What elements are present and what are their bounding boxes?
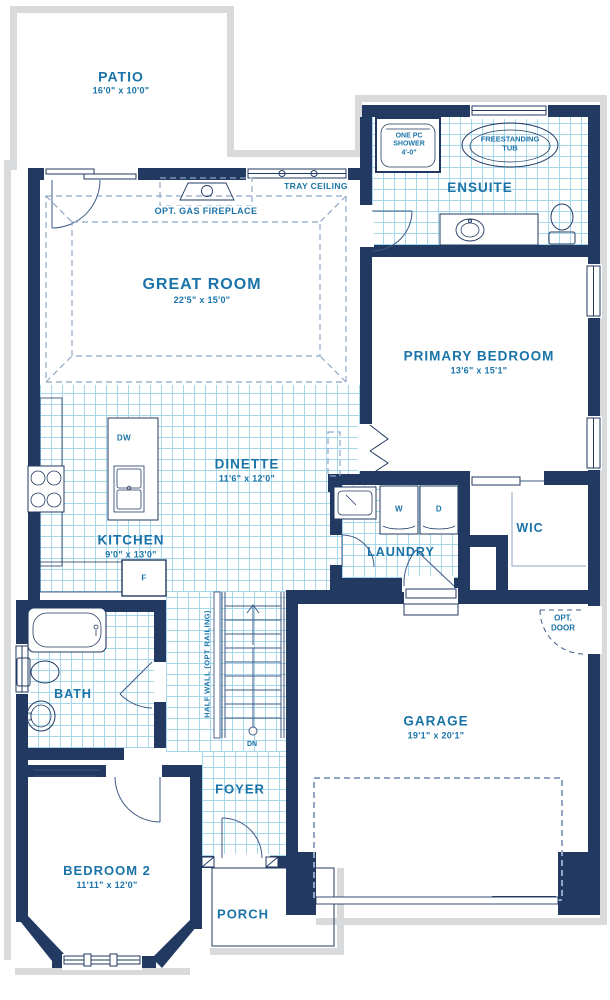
bedroom2-door (115, 777, 160, 822)
room-label-great-room: GREAT ROOM 22'5" x 15'0" (142, 276, 261, 306)
half-wall (214, 592, 220, 738)
annotation-down: DN (247, 741, 257, 749)
room-label-bedroom-2: BEDROOM 2 11'11" x 12'0" (63, 864, 151, 890)
room-label-ensuite: ENSUITE (447, 180, 513, 196)
annotation-opt-door: OPT. DOOR (551, 613, 575, 632)
washer-label: W (395, 504, 403, 513)
annotation-half-wall: HALF WALL (OPT RAILING) (204, 610, 213, 718)
room-label-kitchen: KITCHEN 9'0" x 13'0" (98, 533, 165, 560)
annotation-shower: ONE PC SHOWER 4'-0" (393, 132, 425, 157)
fireplace (180, 183, 234, 200)
room-label-garage: GARAGE 19'1" x 20'1" (403, 714, 468, 741)
kitchen-island (108, 418, 158, 520)
fireplace-outline (160, 178, 252, 206)
bath-sink (26, 701, 55, 731)
ensuite-toilet (549, 204, 575, 244)
stairs-newel (249, 727, 257, 735)
patio-door (52, 180, 100, 228)
floor-plan: PATIO 16'0" x 10'0" GREAT ROOM 22'5" x 1… (0, 0, 610, 1000)
bath-door (120, 662, 152, 708)
room-label-dinette: DINETTE 11'6" x 12'0" (215, 457, 280, 484)
annotation-tray-ceiling: TRAY CEILING (284, 182, 348, 192)
annotation-tub: FREESTANDING TUB (481, 135, 540, 154)
room-label-porch: PORCH (217, 908, 269, 923)
laundry-sink (334, 487, 376, 519)
front-door (222, 818, 262, 858)
cooktop (28, 466, 64, 512)
annotation-fireplace: OPT. GAS FIREPLACE (152, 206, 261, 216)
garage-door-dashed-zone (314, 778, 562, 900)
room-label-laundry: LAUNDRY (367, 545, 435, 559)
room-label-wic: WIC (516, 521, 543, 535)
ensuite-vanity (440, 214, 538, 245)
dryer-label: D (436, 504, 442, 513)
stairs-up-arrow (247, 605, 259, 645)
opt-cabinet (328, 432, 340, 476)
staircase (214, 592, 284, 738)
room-label-primary-bedroom: PRIMARY BEDROOM 13'6" x 15'1" (404, 349, 555, 376)
room-label-foyer: FOYER (215, 783, 265, 798)
room-label-bath: BATH (54, 687, 92, 701)
room-label-patio: PATIO 16'0" x 10'0" (93, 68, 150, 95)
fridge-label: F (141, 573, 146, 582)
bath-tub (28, 608, 106, 652)
garage-door (316, 897, 558, 904)
dishwasher-label: DW (117, 433, 131, 442)
